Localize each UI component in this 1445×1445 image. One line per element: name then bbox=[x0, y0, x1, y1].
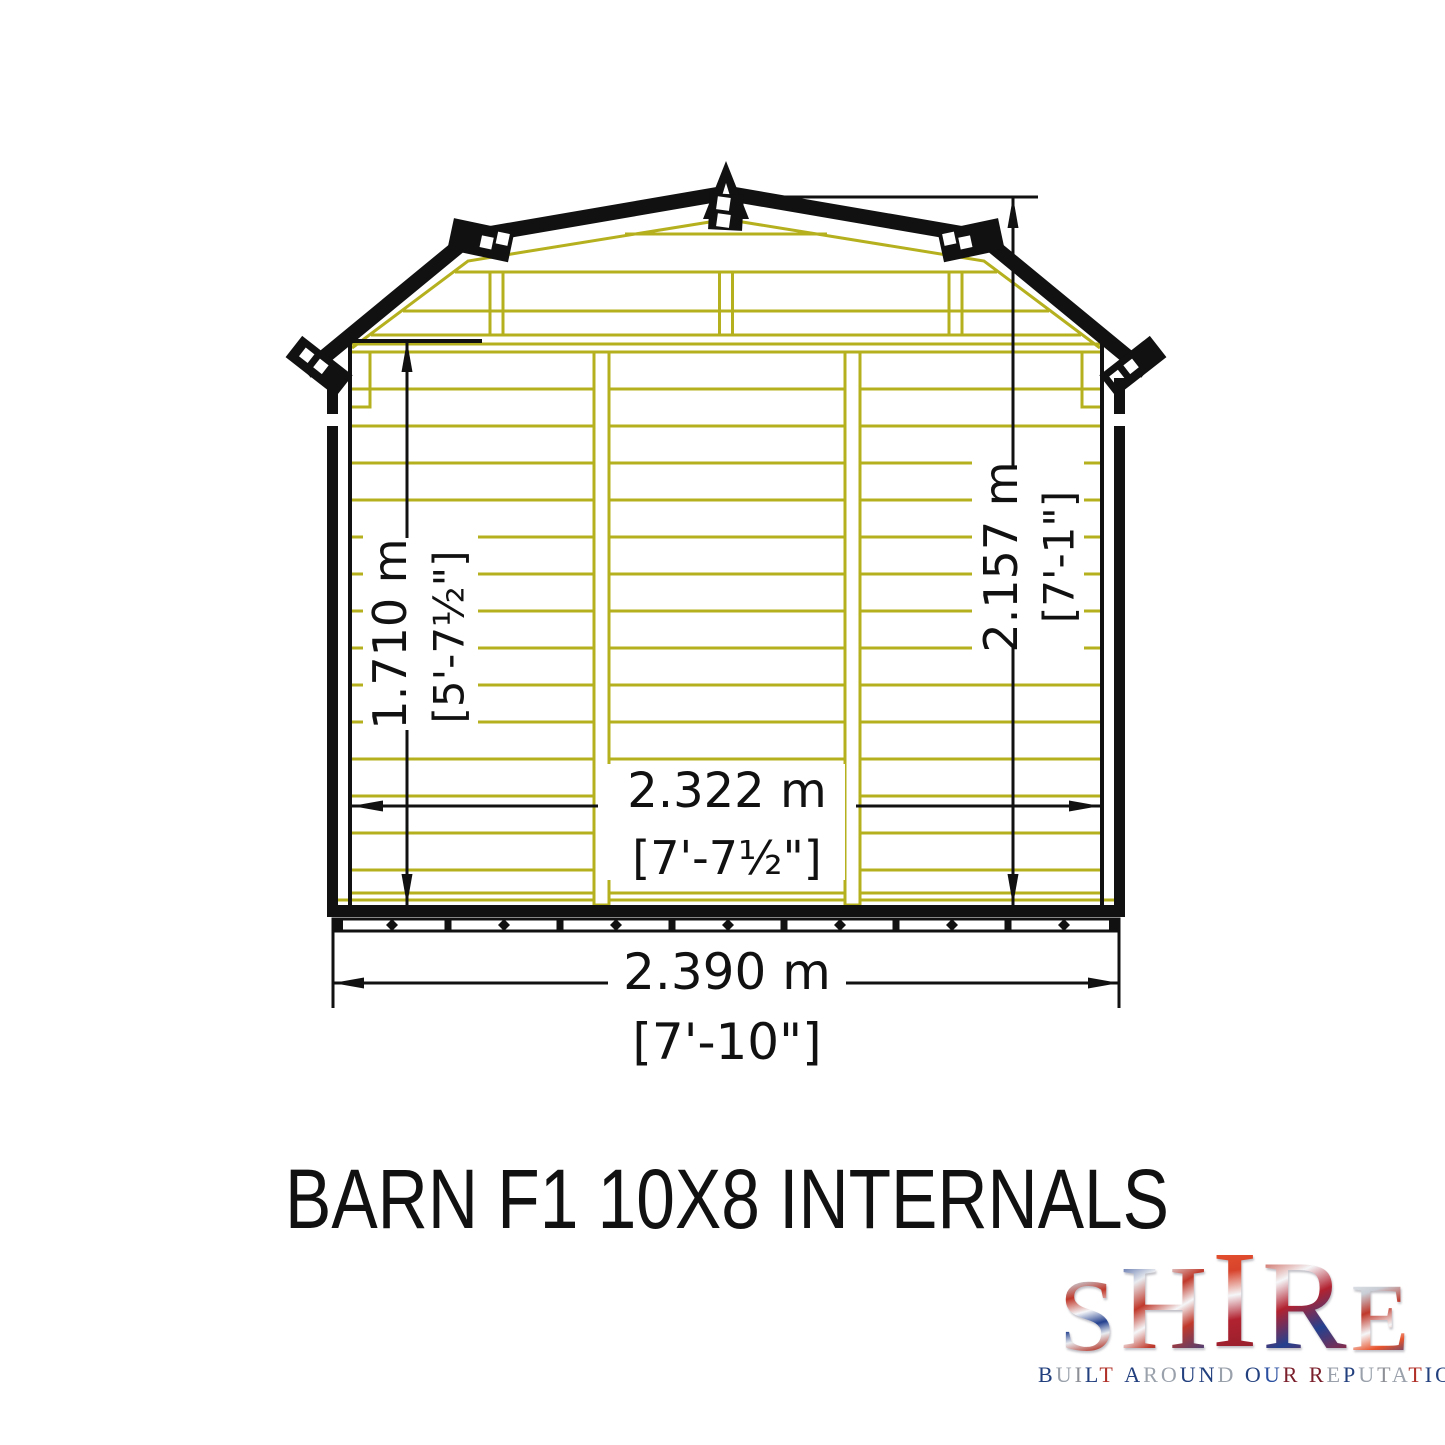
dim-external-width-metric: 2.390 m bbox=[623, 943, 831, 1001]
wall-right bbox=[1102, 341, 1126, 917]
corner-trim-left bbox=[352, 352, 370, 407]
dim-external-width-imperial: [7'-10"] bbox=[632, 1013, 821, 1071]
dim-internal-width-imperial: [7'-7½"] bbox=[632, 831, 821, 885]
wall-stud-right bbox=[845, 352, 860, 905]
brand-logo: SHIRE BUILT AROUND OUR REPUTATION bbox=[1038, 1244, 1430, 1388]
brand-letter: R bbox=[1260, 1254, 1349, 1358]
technical-drawing-page: 1.710 m [5'-7½"] 2.157 m [7'-1"] 2.322 m… bbox=[0, 0, 1445, 1445]
wall-left bbox=[326, 341, 350, 917]
dim-ridge-height-imperial: [7'-1"] bbox=[1035, 491, 1084, 623]
loft-studs bbox=[490, 272, 962, 335]
brand-word: SHIRE bbox=[1038, 1244, 1430, 1358]
brand-letter: S bbox=[1057, 1274, 1118, 1358]
brand-letter: I bbox=[1210, 1244, 1260, 1358]
dim-wall-height-metric: 1.710 m bbox=[363, 538, 417, 729]
brand-letter: E bbox=[1349, 1279, 1412, 1358]
dim-internal-width-metric: 2.322 m bbox=[627, 763, 826, 819]
floor-deck bbox=[327, 905, 1125, 917]
dim-ridge-height-metric: 2.157 m bbox=[974, 461, 1028, 652]
brand-letter: H bbox=[1118, 1259, 1209, 1358]
dim-wall-height-imperial: [5'-7½"] bbox=[425, 551, 474, 724]
corner-trim-right bbox=[1082, 352, 1100, 407]
floor-bearers bbox=[333, 919, 1119, 931]
drawing-title: BARN F1 10X8 INTERNALS bbox=[285, 1152, 1169, 1246]
ridge-joint bbox=[708, 193, 744, 231]
